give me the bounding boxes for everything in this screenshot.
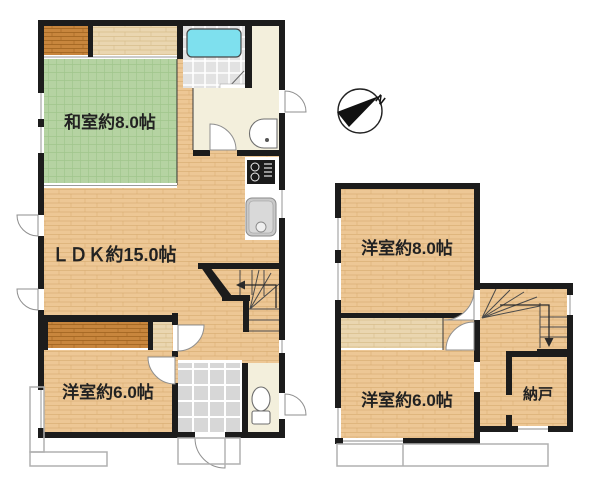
toilet-window-arc bbox=[285, 394, 306, 415]
washbasin bbox=[249, 119, 277, 148]
floor2-closet bbox=[341, 318, 443, 350]
floor2-plan: 洋室約8.0帖 洋室約6.0帖 納戸 bbox=[335, 183, 573, 466]
back-door-arc bbox=[285, 91, 306, 112]
room-label-washitsu: 和室約8.0帖 bbox=[64, 112, 156, 132]
floor-plan-page: 和室約8.0帖 ＬＤＫ約15.0帖 洋室約6.0帖 bbox=[0, 0, 600, 492]
bathtub bbox=[187, 29, 241, 57]
floor1-bedroom-closet bbox=[48, 322, 148, 350]
room-label-yoshitsu6-1f: 洋室約6.0帖 bbox=[62, 382, 154, 402]
sink-drain bbox=[256, 222, 266, 232]
floor-plan: 和室約8.0帖 ＬＤＫ約15.0帖 洋室約6.0帖 bbox=[0, 0, 600, 492]
compass-icon: N bbox=[337, 89, 388, 133]
floor1-bedroom-alcove bbox=[153, 322, 172, 350]
ldk-terrace-door-arc bbox=[17, 215, 38, 236]
floor1-closet-dark bbox=[44, 26, 88, 55]
floor1-closet-light bbox=[93, 26, 177, 55]
room-label-yoshitsu8: 洋室約8.0帖 bbox=[361, 238, 453, 258]
ldk-terrace-door-arc2 bbox=[17, 289, 38, 310]
floor1-plan: 和室約8.0帖 ＬＤＫ約15.0帖 洋室約6.0帖 bbox=[17, 20, 306, 468]
balcony-outline bbox=[337, 444, 548, 466]
entrance-genkan bbox=[178, 363, 242, 432]
toilet bbox=[252, 387, 270, 411]
toilet-tank bbox=[252, 411, 270, 424]
washbasin-drain bbox=[265, 138, 269, 142]
room-label-ldk: ＬＤＫ約15.0帖 bbox=[51, 244, 176, 265]
room-label-yoshitsu6-2f: 洋室約6.0帖 bbox=[361, 390, 453, 410]
room-label-nando: 納戸 bbox=[523, 385, 553, 403]
